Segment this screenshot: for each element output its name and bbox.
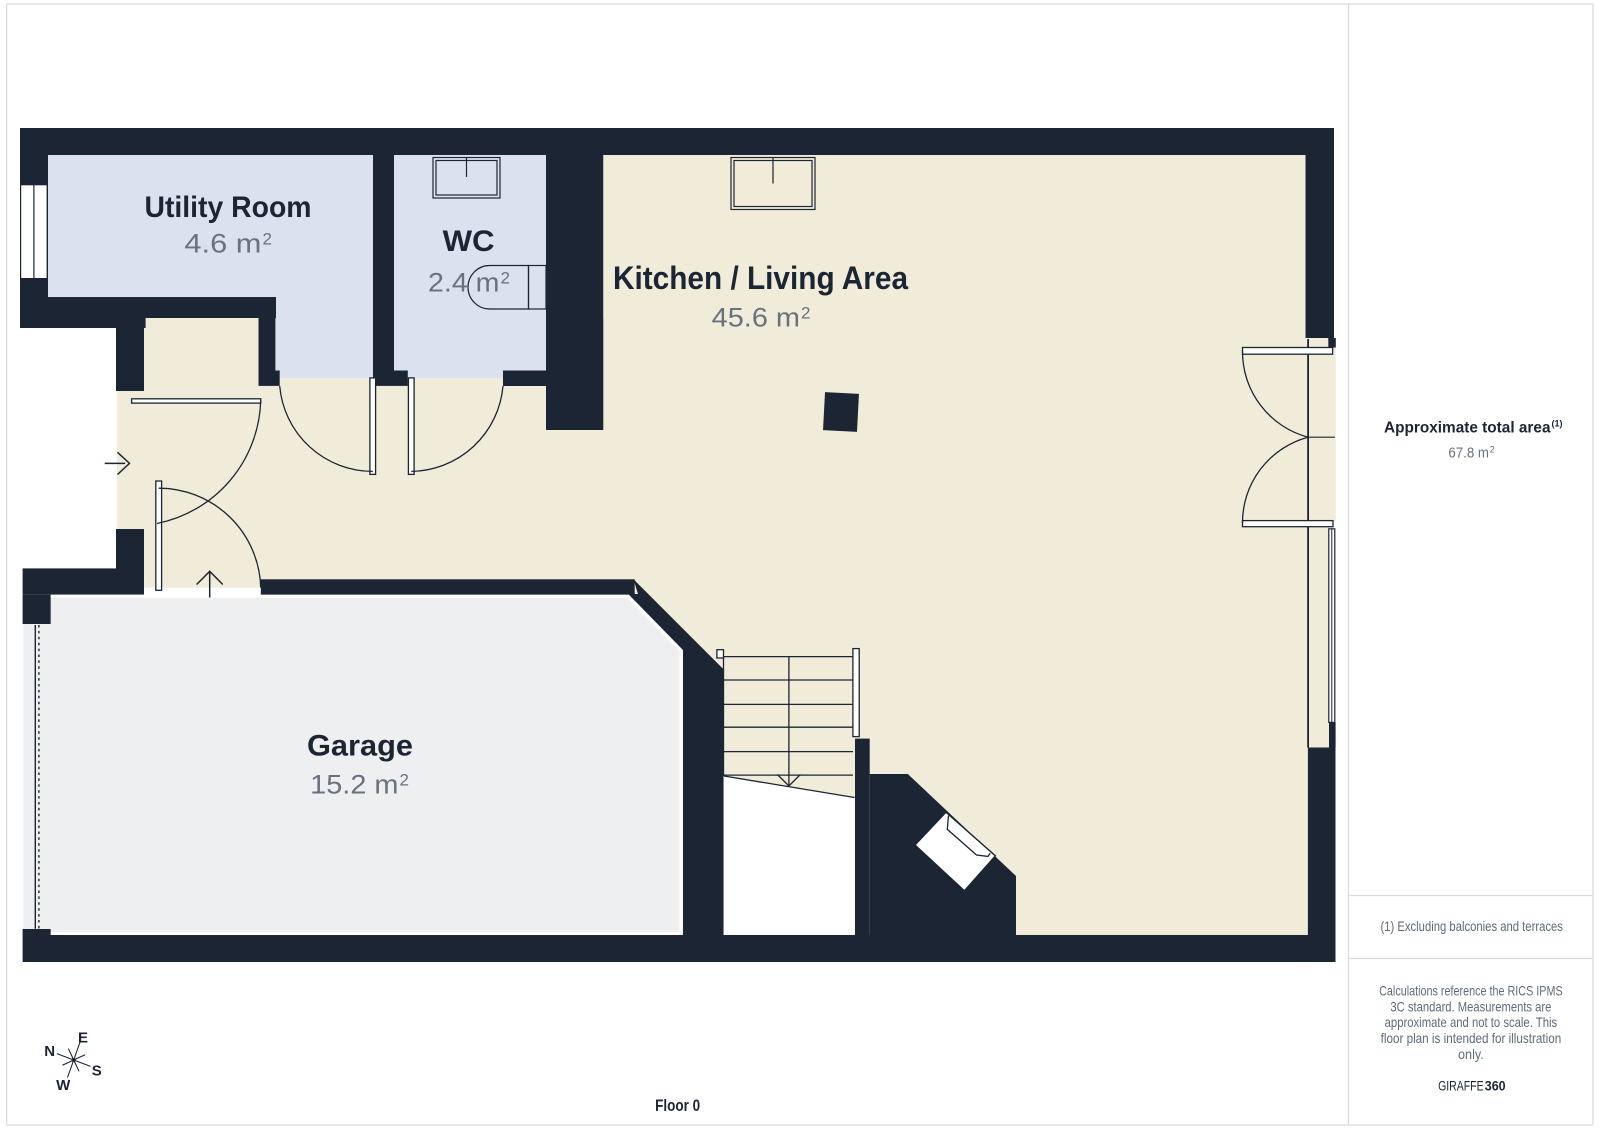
svg-text:2: 2 — [501, 269, 510, 288]
svg-text:67.8 m: 67.8 m — [1448, 446, 1489, 462]
svg-text:(1) Excluding balconies and te: (1) Excluding balconies and terraces — [1380, 918, 1563, 934]
svg-text:N: N — [44, 1043, 55, 1060]
svg-text:floor plan is intended for ill: floor plan is intended for illustration — [1381, 1030, 1562, 1046]
svg-text:Approximate total area: Approximate total area — [1384, 420, 1551, 437]
svg-text:E: E — [78, 1030, 88, 1047]
svg-text:15.2 m: 15.2 m — [310, 770, 398, 800]
svg-text:360: 360 — [1485, 1078, 1506, 1093]
svg-text:GIRAFFE: GIRAFFE — [1438, 1078, 1484, 1093]
svg-text:3C standard. Measurements are: 3C standard. Measurements are — [1390, 998, 1551, 1014]
svg-text:Kitchen / Living Area: Kitchen / Living Area — [613, 260, 908, 296]
svg-text:4.6 m: 4.6 m — [184, 229, 261, 259]
svg-text:2: 2 — [1490, 445, 1495, 455]
svg-text:2: 2 — [263, 230, 272, 249]
svg-text:2: 2 — [801, 304, 810, 323]
svg-text:approximate and not to scale.: approximate and not to scale. This — [1385, 1014, 1558, 1030]
svg-text:S: S — [92, 1062, 102, 1079]
svg-text:2.4 m: 2.4 m — [428, 268, 500, 298]
svg-text:WC: WC — [443, 225, 495, 258]
svg-text:2: 2 — [400, 771, 409, 790]
svg-text:Calculations reference the RIC: Calculations reference the RICS IPMS — [1379, 982, 1563, 998]
svg-text:(1): (1) — [1552, 419, 1563, 429]
svg-text:W: W — [56, 1077, 71, 1094]
svg-text:Floor 0: Floor 0 — [655, 1097, 700, 1115]
svg-text:only.: only. — [1458, 1046, 1484, 1062]
svg-text:Utility Room: Utility Room — [145, 191, 312, 224]
svg-text:Garage: Garage — [307, 730, 413, 763]
svg-text:45.6 m: 45.6 m — [712, 303, 800, 333]
